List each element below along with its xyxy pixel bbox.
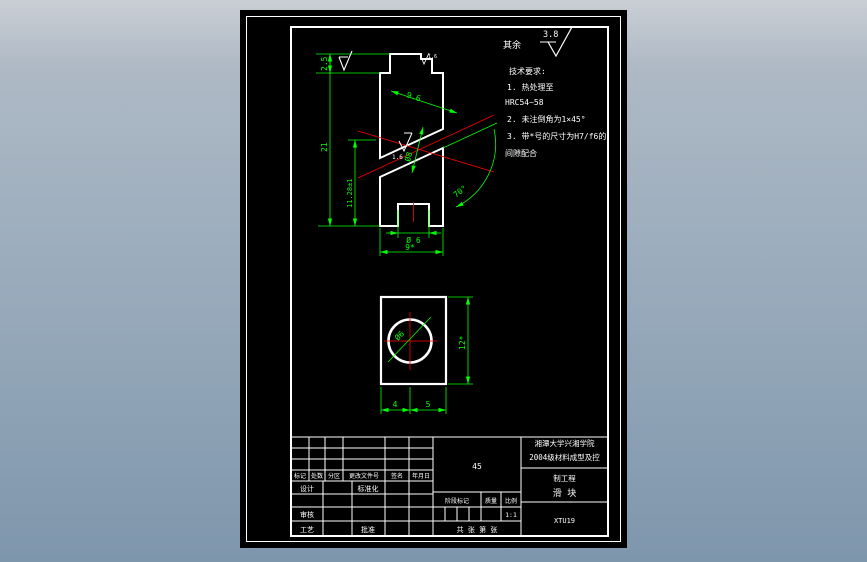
label-process: 工艺 <box>300 526 314 534</box>
tech-line-2: HRC54~58 <box>505 98 544 107</box>
tech-line-3: 2. 未注倒角为1×45° <box>507 114 586 124</box>
title-block: 标记 处数 分区 更改文件号 签名 年月日 设计 标准化 审核 工艺 批准 45 <box>291 437 608 536</box>
hole-axis-centerline <box>358 115 494 178</box>
dim-right-width: 5 <box>426 400 431 409</box>
label-weight: 质量 <box>485 497 497 505</box>
drawing-canvas[interactable]: 其余 3.8 技术要求: 1. 热处理至 HRC54~58 2. 未注倒角为1×… <box>240 10 627 548</box>
drawing-number: XTU19 <box>554 517 575 525</box>
app-background: 其余 3.8 技术要求: 1. 热处理至 HRC54~58 2. 未注倒角为1×… <box>0 0 867 562</box>
slot-roughness-value: 1.6 <box>392 154 403 161</box>
tech-requirements: 技术要求: 1. 热处理至 HRC54~58 2. 未注倒角为1×45° 3. … <box>505 66 606 158</box>
dim-angle: 70° <box>452 184 469 200</box>
step-roughness-value: 1.6 <box>428 54 437 60</box>
dim-slot-length: 9.6 <box>405 90 422 103</box>
label-stage: 阶段标记 <box>445 497 469 505</box>
label-approve: 批准 <box>361 525 375 534</box>
dim-width: 9* <box>405 243 415 252</box>
tech-title: 技术要求: <box>509 66 546 76</box>
surface-finish-note: 其余 3.8 <box>503 27 572 56</box>
label-design: 设计 <box>300 484 314 493</box>
label-zone: 分区 <box>328 472 340 480</box>
dim-hole-dia: Ø6 <box>392 328 406 342</box>
cad-drawing: 其余 3.8 技术要求: 1. 热处理至 HRC54~58 2. 未注倒角为1×… <box>240 10 627 548</box>
part-outline <box>381 297 446 384</box>
dim-height: 12* <box>458 335 467 350</box>
label-sheets: 共 张 第 张 <box>457 525 498 534</box>
program-line-1: 2004级材料成型及控 <box>529 452 600 462</box>
label-doc-no: 更改文件号 <box>349 472 379 480</box>
part-name: 滑 块 <box>553 487 576 499</box>
front-section-view: 2.5 21 11.28±1 9.6 Ø8 1.6 <box>316 51 497 256</box>
tech-line-5: 间隙配合 <box>505 148 537 158</box>
bottom-view: Ø6 12* 4 5 <box>381 297 473 414</box>
label-scale: 比例 <box>505 497 517 505</box>
tech-line-1: 1. 热处理至 <box>507 82 553 92</box>
tech-line-4: 3. 带*号的尺寸为H7/f6的 <box>507 131 606 141</box>
dim-total-height: 21 <box>320 142 329 152</box>
label-count: 处数 <box>311 472 323 480</box>
label-check: 审核 <box>300 510 314 519</box>
label-sign: 签名 <box>391 472 403 480</box>
label-date: 年月日 <box>412 472 430 480</box>
dim-left-width: 4 <box>393 400 398 409</box>
program-line-2: 制工程 <box>553 473 576 483</box>
other-surfaces-label: 其余 <box>503 39 521 51</box>
label-standardize: 标准化 <box>358 484 379 493</box>
label-mark: 标记 <box>294 472 306 480</box>
surface-roughness-value: 3.8 <box>543 30 558 40</box>
school-name: 湘潭大学兴湘学院 <box>535 438 595 448</box>
part-upper-section <box>380 54 443 158</box>
scale-value: 1:1 <box>505 511 517 519</box>
dim-slot-position: 11.28±1 <box>346 178 354 208</box>
dim-step-height: 2.5 <box>320 56 329 71</box>
material-value: 45 <box>472 462 482 471</box>
